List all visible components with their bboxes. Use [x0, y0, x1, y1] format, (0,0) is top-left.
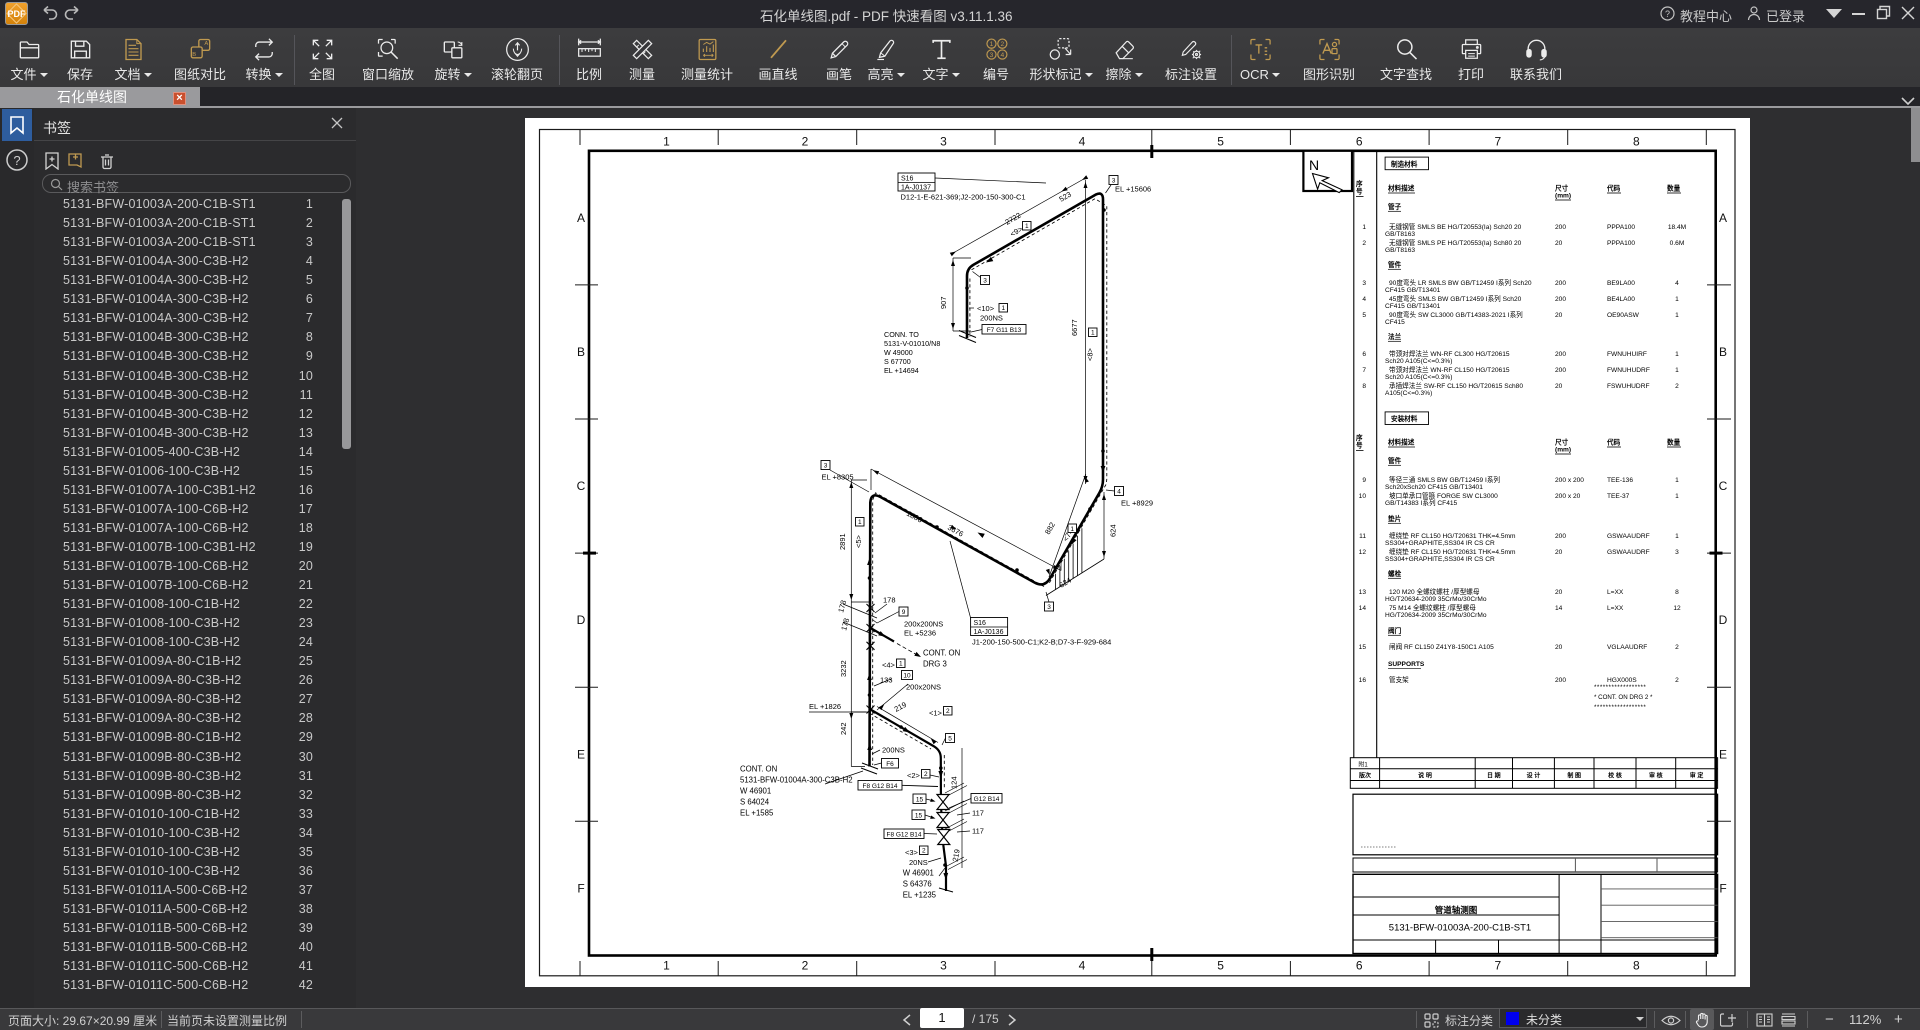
svg-text:B: B — [577, 345, 585, 359]
svg-text:GB/T8163: GB/T8163 — [1385, 231, 1415, 238]
svg-text:8: 8 — [1362, 383, 1366, 390]
svg-text:4: 4 — [1675, 280, 1679, 287]
svg-text:200: 200 — [1555, 533, 1566, 540]
svg-text:1: 1 — [858, 519, 862, 526]
svg-text:C: C — [1719, 479, 1728, 493]
svg-text:DRG 3: DRG 3 — [923, 660, 947, 669]
svg-text:S 64024: S 64024 — [740, 798, 770, 807]
svg-text:2: 2 — [802, 135, 809, 149]
svg-text:1806: 1806 — [905, 509, 924, 525]
svg-text:* CONT. ON DRG 2 *: * CONT. ON DRG 2 * — [1594, 694, 1653, 701]
svg-text:D: D — [1719, 613, 1728, 627]
svg-text:14: 14 — [1359, 605, 1367, 612]
svg-text:W 49000: W 49000 — [884, 348, 913, 357]
svg-text:数量: 数量 — [1667, 184, 1681, 193]
svg-text:5131-BFW-01003A-200-C1B-ST1: 5131-BFW-01003A-200-C1B-ST1 — [1389, 923, 1531, 934]
svg-text:15: 15 — [916, 796, 924, 803]
svg-text:<10>: <10> — [977, 304, 995, 313]
svg-text:GSWAAUDRF: GSWAAUDRF — [1607, 533, 1650, 540]
svg-text:******************: ****************** — [1594, 704, 1646, 711]
svg-text:D12-1-E-621-369;J2-200-150-300: D12-1-E-621-369;J2-200-150-300-C1 — [901, 193, 1026, 202]
svg-text:CF415: CF415 — [1385, 319, 1405, 326]
svg-text:Sch20 A105(C<=0.3%): Sch20 A105(C<=0.3%) — [1385, 358, 1452, 365]
svg-text:管支架: 管支架 — [1389, 675, 1409, 684]
svg-text:5: 5 — [1217, 959, 1224, 973]
svg-text:133: 133 — [880, 676, 893, 685]
svg-text:?: ? — [13, 153, 20, 168]
svg-text:法兰: 法兰 — [1388, 332, 1402, 341]
svg-text:******************: ****************** — [1594, 684, 1646, 691]
svg-text:S 67700: S 67700 — [884, 357, 911, 366]
svg-text:3232: 3232 — [839, 660, 848, 677]
svg-text:HGX000S: HGX000S — [1607, 677, 1637, 684]
svg-text:G12 B14: G12 B14 — [974, 796, 1000, 803]
svg-text:HG/T20634-2009 35CrMo/30CrMo: HG/T20634-2009 35CrMo/30CrMo — [1385, 596, 1487, 603]
svg-text:4: 4 — [1079, 959, 1086, 973]
svg-text:1: 1 — [1675, 477, 1679, 484]
svg-text:<4>: <4> — [882, 661, 896, 670]
svg-text:L=XX: L=XX — [1607, 605, 1624, 612]
svg-text:200NS: 200NS — [980, 314, 1003, 323]
svg-text:1: 1 — [1675, 351, 1679, 358]
svg-text:12: 12 — [1673, 605, 1681, 612]
svg-text:45度弯头 SMLS BW GB/T12459 I系列: 45度弯头 SMLS BW GB/T12459 I系列 Sch20 — [1389, 294, 1522, 303]
svg-text:EL +1585: EL +1585 — [740, 809, 774, 818]
svg-text:J1-200-150-500-C1;K2-B;D7-3-F-: J1-200-150-500-C1;K2-B;D7-3-F-929-684 — [972, 638, 1111, 647]
svg-text:200: 200 — [1555, 351, 1566, 358]
svg-text:等径三通 SMLS BW GB/T12459 I系列: 等径三通 SMLS BW GB/T12459 I系列 — [1389, 475, 1500, 484]
svg-text:GSWAAUDRF: GSWAAUDRF — [1607, 549, 1650, 556]
svg-text:(mm): (mm) — [1555, 447, 1571, 454]
svg-text:1: 1 — [989, 41, 993, 48]
svg-text:闸阀 RF CL150 Z41Y8-150C1 A105: 闸阀 RF CL150 Z41Y8-150C1 A105 — [1389, 642, 1494, 651]
svg-text:CONT. ON: CONT. ON — [740, 765, 777, 774]
svg-text:7: 7 — [1362, 367, 1366, 374]
svg-text:A: A — [577, 211, 585, 225]
svg-text:1: 1 — [1675, 367, 1679, 374]
svg-text:6: 6 — [1362, 351, 1366, 358]
svg-text:(mm): (mm) — [1555, 193, 1571, 200]
svg-text:6: 6 — [1356, 135, 1363, 149]
svg-text:PPPA100: PPPA100 — [1607, 224, 1635, 231]
svg-text:16: 16 — [1359, 677, 1367, 684]
svg-text:<1>: <1> — [929, 709, 943, 718]
svg-text:CONN. TO: CONN. TO — [884, 330, 919, 339]
svg-text:20NS: 20NS — [909, 858, 928, 867]
svg-text:523: 523 — [1058, 190, 1073, 204]
svg-text:代码: 代码 — [1606, 184, 1621, 193]
svg-text:5: 5 — [1217, 135, 1224, 149]
svg-text:624: 624 — [1109, 524, 1118, 537]
svg-text:<5>: <5> — [854, 534, 863, 548]
svg-text:200 x 20: 200 x 20 — [1555, 493, 1581, 500]
svg-text:3: 3 — [989, 52, 993, 59]
svg-text:120 M20 全螺纹螺柱 /厚型螺母: 120 M20 全螺纹螺柱 /厚型螺母 — [1389, 587, 1480, 596]
svg-text:FWNUHUDRF: FWNUHUDRF — [1607, 367, 1650, 374]
svg-text:A: A — [204, 41, 208, 47]
svg-text:L=XX: L=XX — [1607, 589, 1624, 596]
svg-text:VGLAAUDRF: VGLAAUDRF — [1607, 644, 1647, 651]
svg-text:FSWUHUDRF: FSWUHUDRF — [1607, 383, 1650, 390]
svg-text:<8>: <8> — [1086, 347, 1095, 361]
svg-text:材料描述: 材料描述 — [1387, 438, 1415, 447]
svg-text:F6: F6 — [886, 761, 894, 768]
svg-text:尺寸: 尺寸 — [1555, 184, 1569, 193]
svg-text:EL +8929: EL +8929 — [1121, 499, 1153, 508]
svg-text:校 核: 校 核 — [1608, 772, 1622, 780]
svg-text:材料描述: 材料描述 — [1387, 184, 1415, 193]
svg-text:1: 1 — [1675, 296, 1679, 303]
svg-text:E: E — [577, 747, 585, 761]
svg-text:200: 200 — [1555, 296, 1566, 303]
svg-text:2: 2 — [1675, 644, 1679, 651]
svg-text:12: 12 — [1359, 549, 1367, 556]
svg-text:W 46901: W 46901 — [903, 869, 934, 878]
svg-text:882: 882 — [1043, 521, 1057, 536]
svg-text:2: 2 — [924, 771, 928, 778]
svg-text:200: 200 — [1555, 280, 1566, 287]
svg-text:0.6M: 0.6M — [1670, 240, 1685, 247]
svg-text:3: 3 — [1675, 549, 1679, 556]
svg-text:1: 1 — [1675, 493, 1679, 500]
svg-text:EL +1826: EL +1826 — [809, 702, 841, 711]
svg-text:N: N — [1309, 157, 1319, 173]
svg-text:无缝钢管 SMLS PE HG/T20553(Ia) Sc: 无缝钢管 SMLS PE HG/T20553(Ia) Sch80 20 — [1389, 238, 1522, 247]
svg-text:版次: 版次 — [1358, 772, 1371, 780]
svg-text:S 64376: S 64376 — [903, 880, 932, 889]
svg-text:BE9LA00: BE9LA00 — [1607, 280, 1635, 287]
svg-text:2891: 2891 — [838, 533, 847, 550]
svg-text:日 期: 日 期 — [1487, 772, 1501, 780]
svg-text:<2>: <2> — [907, 771, 921, 780]
svg-text:3: 3 — [983, 277, 987, 284]
svg-text:200: 200 — [1555, 224, 1566, 231]
svg-text:制 图: 制 图 — [1567, 772, 1581, 780]
svg-text:20: 20 — [1555, 240, 1563, 247]
svg-text:SUPPORTS: SUPPORTS — [1388, 661, 1425, 668]
svg-text:附1: 附1 — [1358, 761, 1368, 769]
svg-text:178: 178 — [836, 599, 848, 613]
svg-text:4: 4 — [1362, 296, 1366, 303]
svg-text:F7 G11 B13: F7 G11 B13 — [987, 327, 1022, 334]
svg-text:S16: S16 — [901, 176, 914, 183]
svg-text:178: 178 — [883, 596, 896, 605]
svg-text:GB/T8163: GB/T8163 — [1385, 247, 1415, 254]
svg-text:1: 1 — [1070, 526, 1074, 533]
svg-text:号: 号 — [1356, 187, 1363, 196]
svg-text:14: 14 — [1555, 605, 1563, 612]
svg-text:200x200NS: 200x200NS — [904, 620, 943, 629]
svg-text:3: 3 — [1362, 280, 1366, 287]
svg-text:BE4LA00: BE4LA00 — [1607, 296, 1635, 303]
svg-text:Sch20xSch20 CF415 GB/T13401: Sch20xSch20 CF415 GB/T13401 — [1385, 484, 1483, 491]
svg-text:代码: 代码 — [1606, 438, 1621, 447]
svg-text:907: 907 — [939, 296, 948, 309]
svg-text:20: 20 — [1555, 589, 1563, 596]
svg-text:GB/T14383 I系列 CF415: GB/T14383 I系列 CF415 — [1385, 498, 1458, 507]
svg-text:1: 1 — [1675, 533, 1679, 540]
svg-text:2: 2 — [802, 959, 809, 973]
svg-text:尺寸: 尺寸 — [1555, 438, 1569, 447]
svg-text:3: 3 — [1112, 177, 1116, 184]
svg-text:9: 9 — [902, 609, 906, 616]
svg-text:CF415 GB/T13401: CF415 GB/T13401 — [1385, 303, 1441, 310]
svg-text:3: 3 — [1047, 604, 1051, 611]
svg-text:OE90ASW: OE90ASW — [1607, 312, 1640, 319]
svg-text:F: F — [1719, 881, 1726, 895]
svg-text:117: 117 — [972, 809, 984, 818]
svg-text:242: 242 — [839, 722, 848, 735]
svg-text:9: 9 — [1362, 477, 1366, 484]
svg-text:20: 20 — [1555, 383, 1563, 390]
svg-text:CONT. ON: CONT. ON — [923, 649, 960, 658]
svg-text:1: 1 — [1362, 224, 1366, 231]
svg-text:带颈对焊法兰 WN-RF CL150 HG/T20615: 带颈对焊法兰 WN-RF CL150 HG/T20615 — [1389, 365, 1510, 374]
svg-text:D: D — [577, 613, 586, 627]
svg-text:18.4M: 18.4M — [1668, 224, 1686, 231]
svg-text:A: A — [1719, 211, 1727, 225]
svg-text:管件: 管件 — [1388, 260, 1402, 269]
svg-text:200: 200 — [1555, 677, 1566, 684]
svg-text:13: 13 — [1359, 589, 1367, 596]
svg-text:200: 200 — [1555, 367, 1566, 374]
svg-text:序: 序 — [1356, 433, 1363, 442]
svg-text:8: 8 — [1633, 135, 1640, 149]
svg-text:管道轴测图: 管道轴测图 — [1435, 905, 1478, 915]
svg-text:Sch20 A105(C<=0.3%): Sch20 A105(C<=0.3%) — [1385, 374, 1452, 381]
svg-text:1: 1 — [1001, 305, 1005, 312]
svg-text:垫片: 垫片 — [1388, 514, 1402, 523]
svg-text:5: 5 — [948, 735, 952, 742]
svg-text:S16: S16 — [974, 620, 987, 627]
svg-text:3: 3 — [940, 959, 947, 973]
svg-text:A105(C<=0.3%): A105(C<=0.3%) — [1385, 390, 1432, 397]
svg-text:5131-V-01010/N8: 5131-V-01010/N8 — [884, 339, 940, 348]
svg-text:FWNUHUIRF: FWNUHUIRF — [1607, 351, 1647, 358]
svg-text:124: 124 — [950, 776, 959, 789]
svg-text:管子: 管子 — [1388, 202, 1402, 211]
svg-text:90度弯头 SW CL3000 GB/T14383-202: 90度弯头 SW CL3000 GB/T14383-2021 I系列 — [1389, 310, 1523, 319]
svg-text:B: B — [1719, 345, 1727, 359]
svg-text:7: 7 — [1494, 959, 1501, 973]
svg-text:EL +15606: EL +15606 — [1115, 185, 1151, 194]
svg-text:6677: 6677 — [1070, 319, 1079, 336]
svg-text:1: 1 — [1675, 312, 1679, 319]
svg-text:5: 5 — [1362, 312, 1366, 319]
svg-text:1: 1 — [663, 959, 670, 973]
svg-text:90度弯头 LR SMLS BW GB/T12459 I系: 90度弯头 LR SMLS BW GB/T12459 I系列 Sch20 — [1389, 278, 1532, 287]
svg-text:无缝钢管 SMLS BE HG/T20553(Ia) Sc: 无缝钢管 SMLS BE HG/T20553(Ia) Sch20 20 — [1389, 222, 1522, 231]
svg-text:设 计: 设 计 — [1527, 772, 1541, 780]
svg-text:219: 219 — [893, 700, 908, 714]
svg-text:EL +5236: EL +5236 — [904, 629, 936, 638]
svg-text:SS304+GRAPHITE,SS304 IR CS CR: SS304+GRAPHITE,SS304 IR CS CR — [1385, 540, 1495, 547]
svg-text:EL +14694: EL +14694 — [884, 366, 919, 375]
svg-text:E: E — [1719, 747, 1727, 761]
svg-text:1: 1 — [1091, 329, 1095, 336]
svg-text:号: 号 — [1356, 441, 1363, 450]
svg-text:TEE-37: TEE-37 — [1607, 493, 1630, 500]
svg-text:20: 20 — [1555, 549, 1563, 556]
svg-text:SS304+GRAPHITE,SS304 IR CS CR: SS304+GRAPHITE,SS304 IR CS CR — [1385, 556, 1495, 563]
svg-text:6: 6 — [1356, 959, 1363, 973]
svg-text:1A-J0137: 1A-J0137 — [901, 185, 931, 192]
svg-text:制造材料: 制造材料 — [1391, 159, 1418, 168]
svg-text:承插焊法兰 SW-RF CL150 HG/T20615: 承插焊法兰 SW-RF CL150 HG/T20615 Sch80 — [1389, 381, 1523, 390]
svg-text:1A-J0136: 1A-J0136 — [974, 629, 1004, 636]
svg-text:F8 G12 B14: F8 G12 B14 — [862, 783, 897, 790]
svg-text:3: 3 — [824, 462, 828, 469]
svg-text:审 核: 审 核 — [1649, 772, 1663, 780]
svg-text:15: 15 — [915, 812, 923, 819]
svg-text:W 46901: W 46901 — [740, 787, 771, 796]
svg-text:缠绕垫 RF CL150 HG/T20631 THK=4: 缠绕垫 RF CL150 HG/T20631 THK=4.5mm — [1389, 531, 1516, 540]
svg-text:说 明: 说 明 — [1418, 772, 1432, 780]
svg-text:3: 3 — [940, 135, 947, 149]
svg-text:11: 11 — [1359, 533, 1366, 540]
svg-text:8: 8 — [1633, 959, 1640, 973]
svg-text:8: 8 — [1675, 589, 1679, 596]
svg-text:20: 20 — [1555, 312, 1563, 319]
svg-text:安装材料: 安装材料 — [1391, 414, 1418, 423]
svg-text:C: C — [577, 479, 586, 493]
svg-text:7: 7 — [1494, 135, 1501, 149]
svg-text:20: 20 — [1555, 644, 1563, 651]
svg-text:EL +1235: EL +1235 — [903, 891, 937, 900]
svg-text:2: 2 — [922, 847, 926, 854]
svg-text:螺栓: 螺栓 — [1388, 569, 1402, 578]
svg-text:数量: 数量 — [1667, 438, 1681, 447]
svg-text:管件: 管件 — [1388, 456, 1402, 465]
svg-text:2: 2 — [1675, 383, 1679, 390]
svg-text:4: 4 — [1117, 488, 1121, 495]
svg-text:200x20NS: 200x20NS — [906, 683, 941, 692]
svg-text:TEE-136: TEE-136 — [1607, 477, 1633, 484]
svg-text:15: 15 — [1359, 644, 1367, 651]
svg-text:<3>: <3> — [905, 848, 919, 857]
svg-text:缠绕垫 RF CL150 HG/T20631 THK=4: 缠绕垫 RF CL150 HG/T20631 THK=4.5mm — [1389, 547, 1516, 556]
svg-text:178: 178 — [839, 617, 851, 631]
svg-text:1: 1 — [899, 660, 903, 667]
svg-text:219: 219 — [951, 848, 962, 862]
svg-text:PPPA100: PPPA100 — [1607, 240, 1635, 247]
svg-text:F: F — [577, 881, 584, 895]
svg-text:200 x 200: 200 x 200 — [1555, 477, 1584, 484]
svg-text:200NS: 200NS — [882, 746, 905, 755]
svg-text:?: ? — [1665, 9, 1670, 19]
svg-text:HG/T20634-2009 35CrMo/30CrMo: HG/T20634-2009 35CrMo/30CrMo — [1385, 612, 1487, 619]
svg-text:阀门: 阀门 — [1388, 626, 1402, 635]
svg-text:2: 2 — [1675, 677, 1679, 684]
svg-text:审 定: 审 定 — [1690, 772, 1704, 780]
svg-text:2: 2 — [1362, 240, 1366, 247]
svg-text:序: 序 — [1356, 179, 1363, 188]
svg-text:坡口单承口管箍 FORGE SW CL3000: 坡口单承口管箍 FORGE SW CL3000 — [1389, 491, 1498, 500]
svg-text:B: B — [192, 52, 196, 58]
svg-text:4: 4 — [1079, 135, 1086, 149]
svg-text:1: 1 — [663, 135, 670, 149]
svg-text:CF415 GB/T13401: CF415 GB/T13401 — [1385, 287, 1441, 294]
svg-text:75 M14 全螺纹螺柱 /厚型螺母: 75 M14 全螺纹螺柱 /厚型螺母 — [1389, 603, 1476, 612]
svg-text:1: 1 — [1025, 223, 1029, 230]
svg-text:PDF: PDF — [8, 9, 27, 19]
svg-text:10: 10 — [1359, 493, 1367, 500]
svg-text:117: 117 — [972, 827, 984, 836]
svg-text:F8 G12 B14: F8 G12 B14 — [886, 831, 921, 838]
svg-text:2: 2 — [946, 708, 950, 715]
svg-text:10: 10 — [903, 672, 911, 679]
svg-text:带颈对焊法兰 WN-RF CL300 HG/T20615: 带颈对焊法兰 WN-RF CL300 HG/T20615 — [1389, 349, 1510, 358]
